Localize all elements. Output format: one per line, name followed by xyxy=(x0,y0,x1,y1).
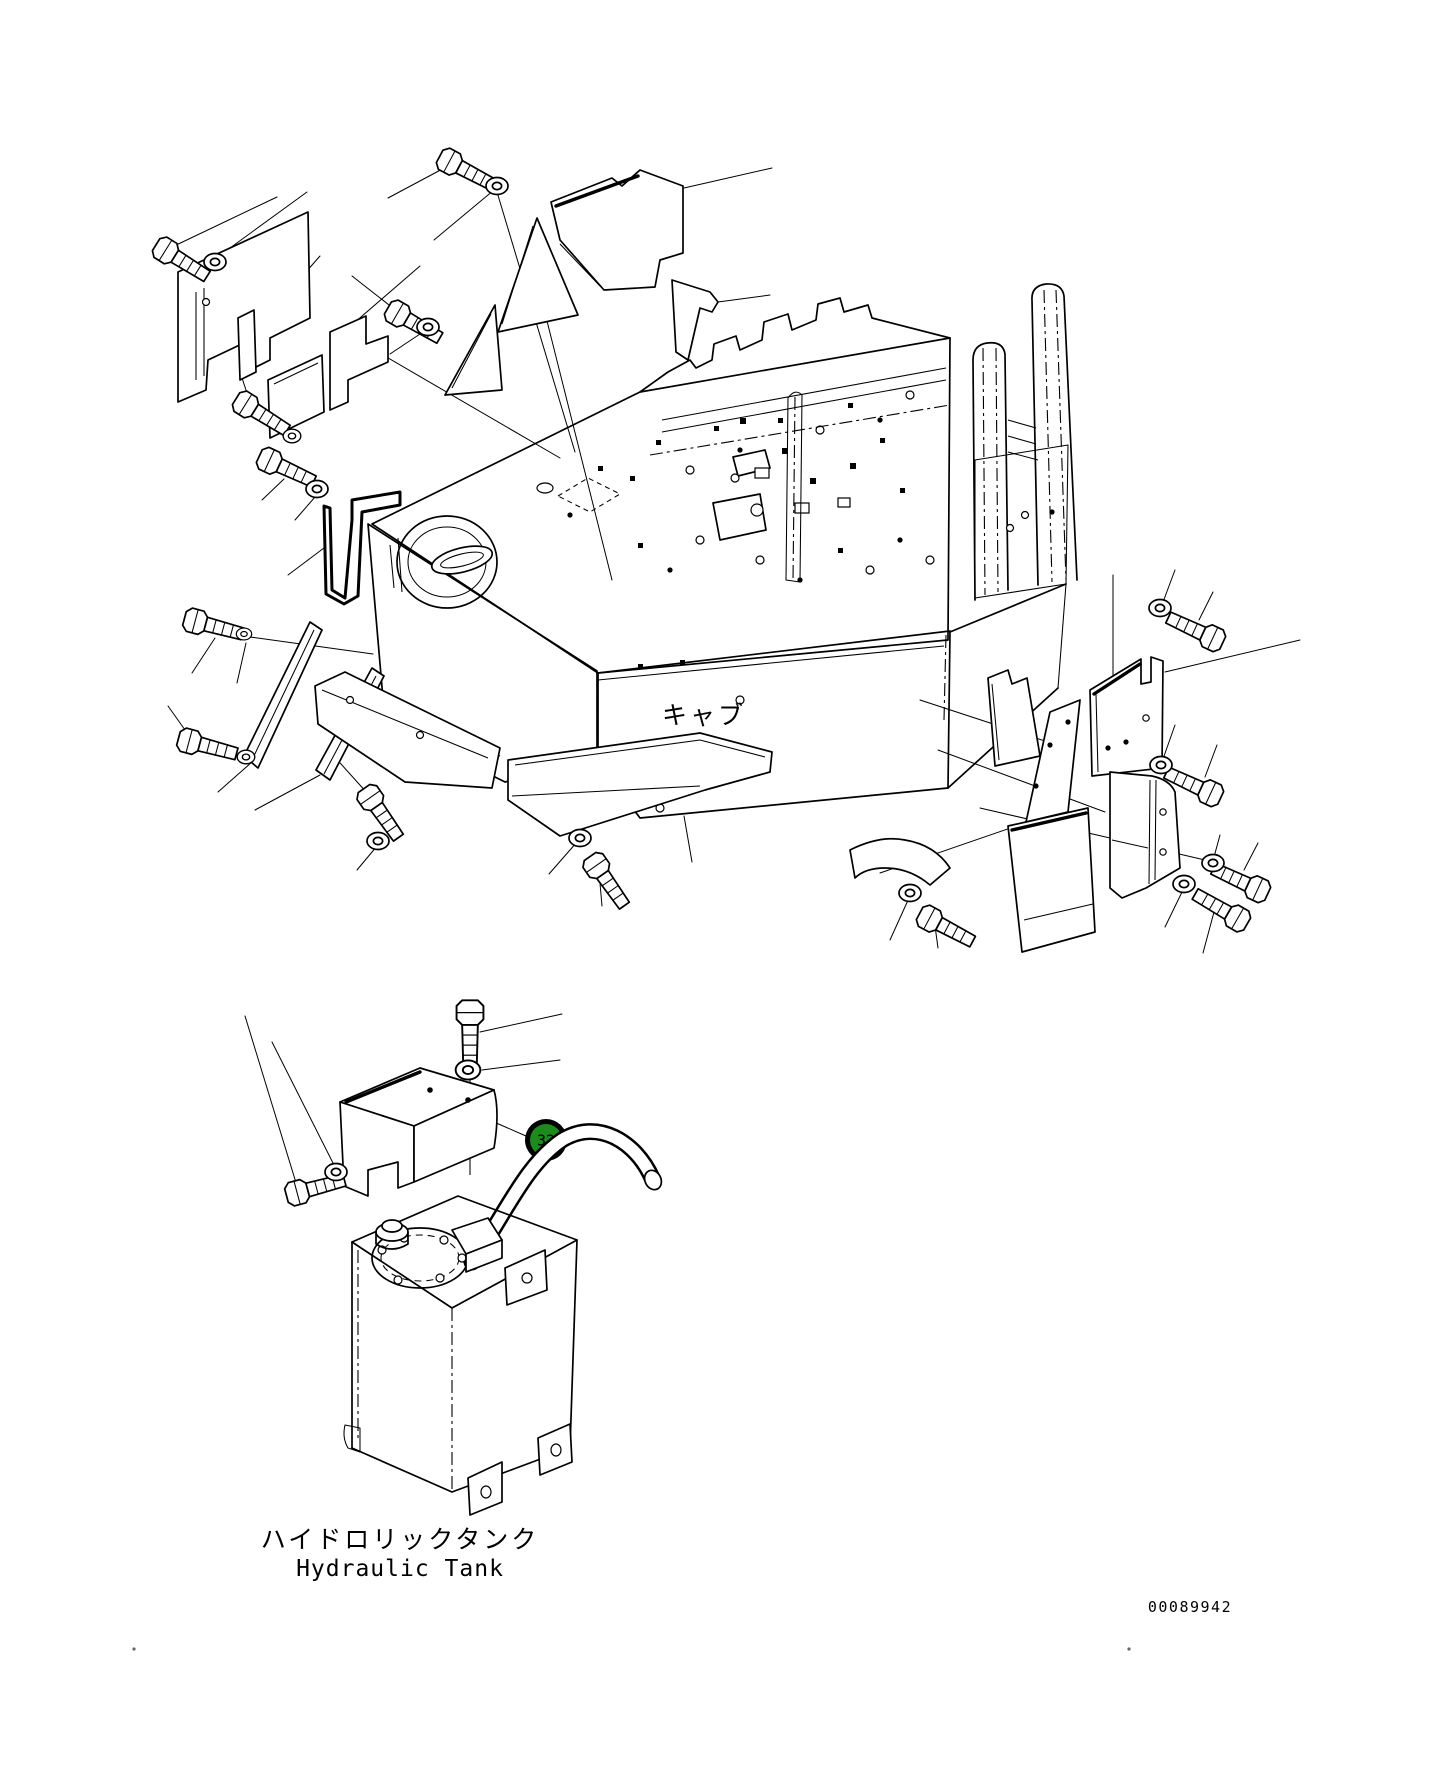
washer xyxy=(1173,876,1195,893)
cover-panel xyxy=(988,670,1040,766)
bolt xyxy=(580,850,634,913)
tank-label-en: Hydraulic Tank xyxy=(296,1556,504,1582)
washer xyxy=(899,885,921,902)
bolt xyxy=(1163,607,1228,654)
exploded-parts-diagram: キャブ Cab xyxy=(0,0,1443,1792)
page-mark xyxy=(132,1647,135,1650)
washer xyxy=(569,830,591,847)
washer xyxy=(237,750,255,764)
washer xyxy=(1149,600,1171,617)
corner-bracket-panel xyxy=(1110,772,1180,898)
page-mark xyxy=(1127,1647,1130,1650)
washer xyxy=(1150,757,1172,774)
tank-side-bracket xyxy=(505,1250,547,1305)
triangular-panel xyxy=(445,305,502,395)
cab-label-ja: キャブ xyxy=(662,701,746,730)
bolt xyxy=(175,727,239,766)
hydraulic-tank-assembly: 32 xyxy=(340,1068,664,1515)
washer xyxy=(367,833,389,850)
filler-cap xyxy=(376,1220,408,1249)
cover-panel xyxy=(238,310,256,380)
cover-bracket xyxy=(330,316,388,410)
bolt xyxy=(457,1000,484,1067)
corner-bracket xyxy=(850,839,950,885)
washer xyxy=(283,429,301,443)
washer xyxy=(456,1060,481,1079)
washer xyxy=(1202,855,1224,872)
hydraulic-tank-body xyxy=(344,1196,577,1515)
top-left-panels xyxy=(178,212,388,438)
washer xyxy=(236,628,251,640)
washer xyxy=(417,319,439,336)
cover-panel xyxy=(551,170,683,290)
washer xyxy=(325,1164,347,1181)
notched-cover-panel xyxy=(1090,657,1163,776)
top-center-panels xyxy=(445,170,718,395)
tank-cover-panel xyxy=(340,1068,497,1196)
parts-diagram-page: キャブ Cab xyxy=(0,0,1443,1792)
washer xyxy=(306,481,328,498)
cover-blade xyxy=(672,280,718,360)
drawing-number: 00089942 xyxy=(1148,1598,1232,1616)
bottom-panels xyxy=(315,672,950,885)
bolt xyxy=(914,903,978,952)
grab-handle-slot xyxy=(429,541,495,579)
washer xyxy=(486,178,508,195)
tank-label-ja: ハイドロリックタンク xyxy=(261,1525,540,1554)
washer xyxy=(204,254,226,271)
mount-bracket xyxy=(324,492,400,604)
front-apron-panel xyxy=(315,672,500,788)
